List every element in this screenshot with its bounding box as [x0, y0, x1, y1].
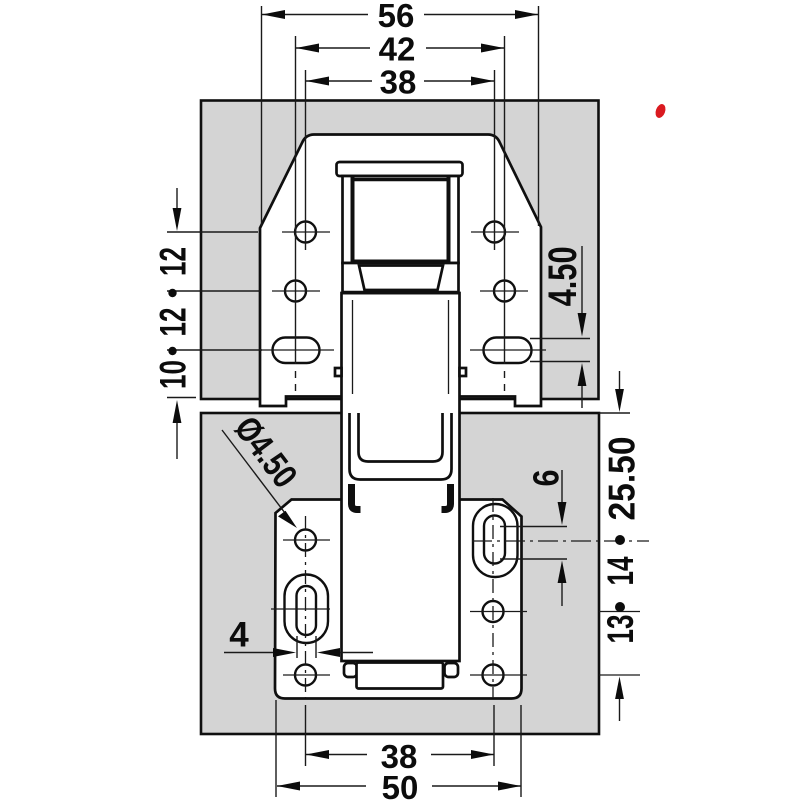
svg-text:56: 56 — [378, 0, 415, 34]
svg-text:42: 42 — [379, 31, 416, 68]
svg-text:4: 4 — [229, 616, 249, 655]
svg-text:50: 50 — [382, 769, 419, 800]
svg-text:38: 38 — [380, 64, 417, 101]
svg-text:12: 12 — [153, 247, 194, 276]
svg-text:13: 13 — [600, 615, 641, 644]
svg-text:12: 12 — [153, 308, 194, 337]
svg-text:6: 6 — [526, 470, 567, 487]
svg-text:4.50: 4.50 — [541, 246, 585, 306]
svg-text:25.50: 25.50 — [602, 437, 643, 521]
svg-text:10: 10 — [153, 360, 194, 389]
svg-text:14: 14 — [600, 556, 641, 585]
